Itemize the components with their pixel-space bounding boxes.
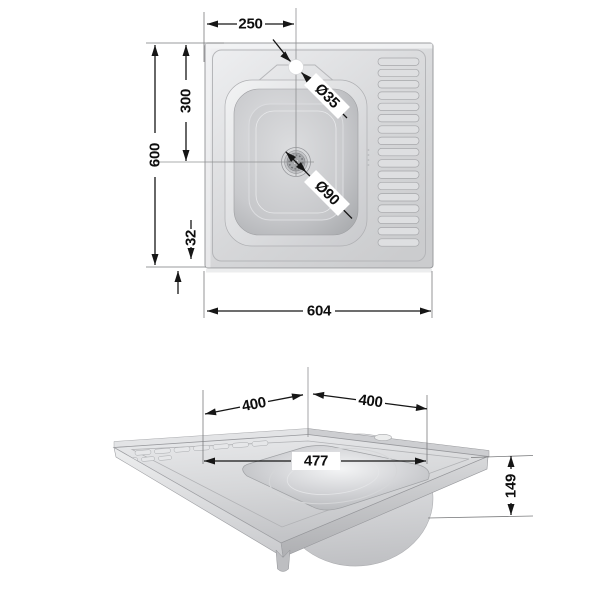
rib bbox=[378, 160, 419, 167]
dim-bottom-offset-label: 32 bbox=[183, 230, 200, 246]
rib bbox=[232, 442, 248, 448]
dim-right-edge-label: 400 bbox=[357, 391, 383, 411]
dim-overall-depth-label: 600 bbox=[147, 143, 164, 167]
rib bbox=[378, 81, 419, 88]
drawing-canvas: 250 600 300 32 604 bbox=[0, 0, 600, 600]
drainboard-ribs bbox=[378, 58, 419, 246]
rib bbox=[158, 455, 171, 460]
rib bbox=[378, 194, 419, 201]
dimension-300: 300 bbox=[178, 45, 195, 161]
faucet-hole bbox=[289, 60, 304, 75]
dimension-400-right: 400 bbox=[313, 391, 427, 411]
rib bbox=[378, 137, 419, 144]
rib bbox=[378, 216, 419, 223]
rib bbox=[174, 447, 190, 453]
rib bbox=[193, 445, 209, 451]
rim-highlight-top bbox=[206, 44, 433, 49]
faucet-hole-perspective bbox=[375, 434, 392, 440]
rib bbox=[378, 171, 419, 178]
sink-drop-shadow bbox=[206, 269, 432, 273]
dim-top-width-label: 250 bbox=[238, 16, 262, 33]
dim-drain-center-label: 300 bbox=[178, 89, 195, 113]
rib bbox=[378, 69, 419, 76]
rib bbox=[154, 448, 170, 454]
dimension-32: 32 bbox=[175, 220, 200, 294]
dimension-149: 149 bbox=[503, 456, 520, 515]
rib bbox=[378, 205, 419, 212]
rib bbox=[141, 456, 154, 461]
rib bbox=[378, 92, 419, 99]
dim-overall-width-label: 604 bbox=[307, 303, 332, 320]
rib bbox=[378, 126, 419, 133]
rib bbox=[378, 228, 419, 235]
rib bbox=[378, 148, 419, 155]
rib bbox=[378, 58, 419, 65]
rib bbox=[213, 444, 229, 450]
rib bbox=[378, 182, 419, 189]
dimension-250: 250 bbox=[207, 16, 294, 33]
dim-bowl-depth-label: 149 bbox=[503, 474, 520, 498]
dimension-604: 604 bbox=[207, 303, 431, 320]
perspective-view bbox=[114, 429, 489, 572]
rib bbox=[378, 103, 419, 110]
rib bbox=[378, 239, 419, 246]
rib bbox=[135, 450, 151, 456]
rib bbox=[378, 115, 419, 122]
sink-technical-drawing: 250 600 300 32 604 bbox=[0, 0, 600, 600]
rim-highlight-left bbox=[206, 44, 211, 268]
rib bbox=[252, 441, 268, 447]
dim-left-edge-label: 400 bbox=[241, 394, 268, 415]
dimension-600: 600 bbox=[147, 45, 164, 265]
dimension-400-left: 400 bbox=[205, 394, 303, 416]
dim-bowl-width-label: 477 bbox=[304, 453, 328, 470]
